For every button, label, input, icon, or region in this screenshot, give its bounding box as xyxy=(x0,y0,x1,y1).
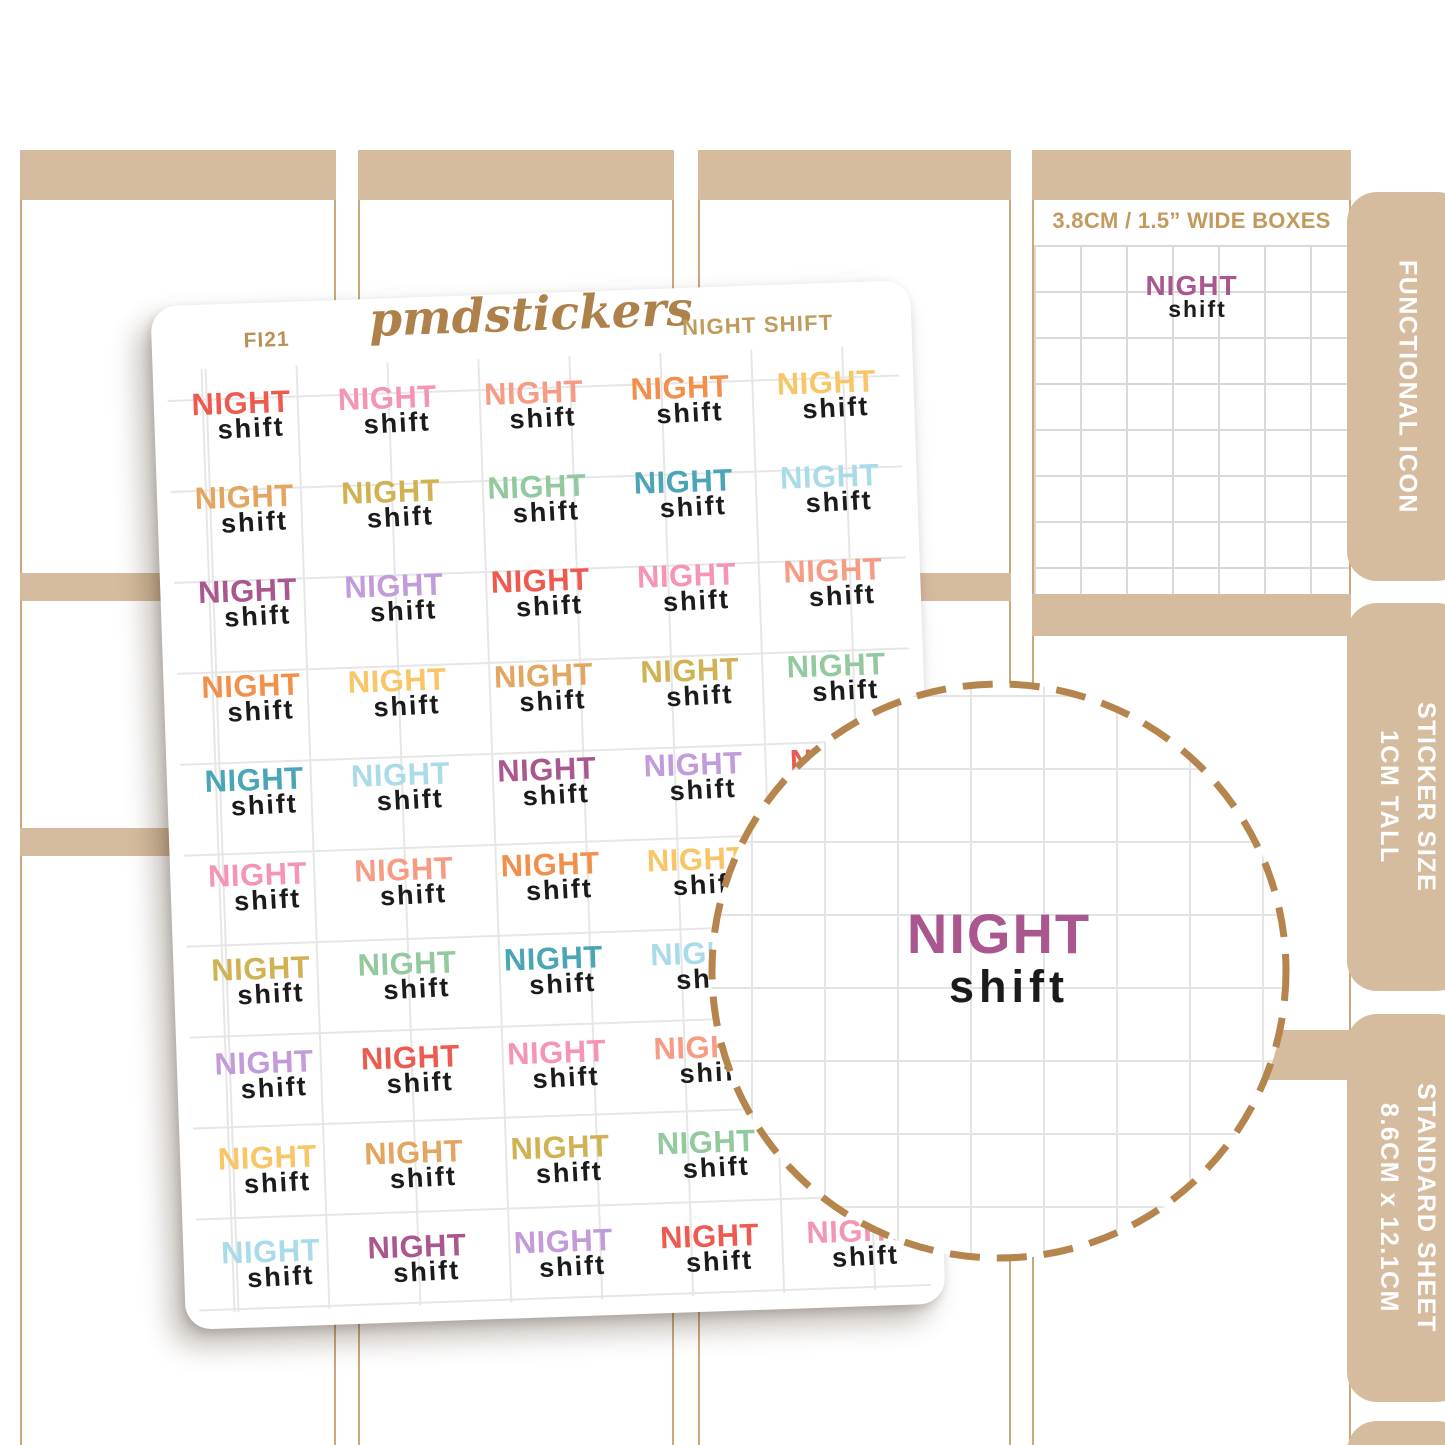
sticker-orange: NIGHTshift xyxy=(476,826,626,925)
sheet-title: NIGHT SHIFT xyxy=(682,310,834,341)
sticker-salmon: NIGHTshift xyxy=(459,355,609,454)
planner-header-bar xyxy=(20,150,336,200)
tab-label: FUNCTIONAL ICON xyxy=(1393,260,1422,514)
sticker-mustard: NIGHTshift xyxy=(316,454,466,553)
tab-label: 8.6CM x 12.1CM xyxy=(1374,1103,1403,1313)
sticker-tan: NIGHTshift xyxy=(469,638,619,737)
sticker-word-shift: shift xyxy=(243,1168,311,1198)
planner-header-bar xyxy=(698,150,1011,200)
sticker-word-shift: shift xyxy=(519,686,587,716)
tab-label: STICKER SIZE xyxy=(1411,702,1440,892)
demo-sticker-word-shift: shift xyxy=(1040,298,1355,321)
box-width-label: 3.8CM / 1.5” WIDE BOXES xyxy=(1028,208,1355,234)
sticker-word-shift: shift xyxy=(220,507,288,537)
sticker-word-shift: shift xyxy=(539,1252,607,1282)
sticker-word-shift: shift xyxy=(379,880,447,910)
sticker-word-shift: shift xyxy=(802,393,870,423)
tab-sticker-size: STICKER SIZE1CM TALL xyxy=(1347,603,1445,991)
sticker-word-shift: shift xyxy=(227,696,295,726)
sticker-green: NIGHTshift xyxy=(463,449,613,548)
magnifier-circle: NIGHT shift xyxy=(705,677,1293,1265)
sticker-mustard: NIGHTshift xyxy=(486,1109,636,1208)
tab-standard-sheet: STANDARD SHEET8.6CM x 12.1CM xyxy=(1347,1014,1445,1402)
sticker-yellow: NIGHTshift xyxy=(752,345,902,444)
sticker-word-shift: shift xyxy=(805,487,873,517)
sticker-tan: NIGHTshift xyxy=(339,1115,489,1214)
sticker-lavender: NIGHTshift xyxy=(190,1025,340,1124)
sticker-plum: NIGHTshift xyxy=(173,554,323,653)
sticker-word-shift: shift xyxy=(363,408,431,438)
tab-partial xyxy=(1347,1421,1445,1445)
sticker-word-shift: shift xyxy=(516,592,584,622)
planner-header-bar xyxy=(358,150,674,200)
sticker-pink: NIGHTshift xyxy=(313,360,463,459)
sticker-light-blue: NIGHTshift xyxy=(326,737,476,836)
tab-label: 1CM TALL xyxy=(1374,730,1403,864)
tab-functional-icon: FUNCTIONAL ICON xyxy=(1347,192,1445,581)
sticker-word-shift: shift xyxy=(659,492,727,522)
sticker-word-shift: shift xyxy=(536,1158,604,1188)
sticker-word-shift: shift xyxy=(526,875,594,905)
sticker-pink: NIGHTshift xyxy=(482,1015,632,1114)
sticker-red: NIGHTshift xyxy=(336,1020,486,1119)
sticker-pink: NIGHTshift xyxy=(183,837,333,936)
sticker-word-shift: shift xyxy=(370,597,438,627)
sticker-yellow: NIGHTshift xyxy=(323,643,473,742)
sticker-word-shift: shift xyxy=(386,1068,454,1098)
sticker-teal: NIGHTshift xyxy=(609,444,759,543)
sticker-teal: NIGHTshift xyxy=(180,742,330,841)
sticker-red: NIGHTshift xyxy=(167,365,317,464)
sticker-word-shift: shift xyxy=(522,780,590,810)
sticker-word-shift: shift xyxy=(513,497,581,527)
tab-label: STANDARD SHEET xyxy=(1411,1083,1440,1333)
sticker-light-blue: NIGHTshift xyxy=(196,1214,346,1313)
sticker-word-shift: shift xyxy=(223,602,291,632)
sticker-plum: NIGHTshift xyxy=(472,732,622,831)
demo-sticker: NIGHT shift xyxy=(1034,272,1349,321)
sticker-word-shift: shift xyxy=(532,1063,600,1093)
sticker-word-shift: shift xyxy=(376,785,444,815)
sticker-yellow: NIGHTshift xyxy=(193,1120,343,1219)
sticker-word-shift: shift xyxy=(373,691,441,721)
product-image: 3.8CM / 1.5” WIDE BOXES NIGHT shift FI21… xyxy=(0,0,1445,1445)
sticker-word-shift: shift xyxy=(389,1163,457,1193)
sticker-orange: NIGHTshift xyxy=(176,648,326,747)
sticker-red: NIGHTshift xyxy=(466,543,616,642)
sticker-lavender: NIGHTshift xyxy=(489,1204,639,1303)
sticker-lavender: NIGHTshift xyxy=(319,549,469,648)
sticker-mustard: NIGHTshift xyxy=(186,931,336,1030)
dashed-ring xyxy=(705,677,1293,1265)
sticker-orange: NIGHTshift xyxy=(606,350,756,449)
sticker-word-shift: shift xyxy=(217,413,285,443)
sticker-word-shift: shift xyxy=(809,581,877,611)
sticker-word-shift: shift xyxy=(383,974,451,1004)
sticker-salmon: NIGHTshift xyxy=(758,533,908,632)
planner-header-bar xyxy=(1032,594,1351,636)
sticker-word-shift: shift xyxy=(662,586,730,616)
sticker-word-shift: shift xyxy=(393,1257,461,1287)
sticker-word-shift: shift xyxy=(236,979,304,1009)
sticker-salmon: NIGHTshift xyxy=(329,832,479,931)
sticker-word-shift: shift xyxy=(240,1073,308,1103)
sticker-green: NIGHTshift xyxy=(333,926,483,1025)
sticker-word-shift: shift xyxy=(529,969,597,999)
sticker-pink: NIGHTshift xyxy=(612,538,762,637)
planner-header-bar xyxy=(1032,150,1351,200)
sticker-word-shift: shift xyxy=(656,398,724,428)
sticker-light-blue: NIGHTshift xyxy=(755,439,905,538)
sticker-word-shift: shift xyxy=(233,885,301,915)
sticker-word-shift: shift xyxy=(230,790,298,820)
sticker-plum: NIGHTshift xyxy=(343,1209,493,1308)
sticker-tan: NIGHTshift xyxy=(170,459,320,558)
sticker-word-shift: shift xyxy=(509,403,577,433)
sticker-word-shift: shift xyxy=(366,502,434,532)
sticker-teal: NIGHTshift xyxy=(479,921,629,1020)
sticker-word-shift: shift xyxy=(246,1262,314,1292)
